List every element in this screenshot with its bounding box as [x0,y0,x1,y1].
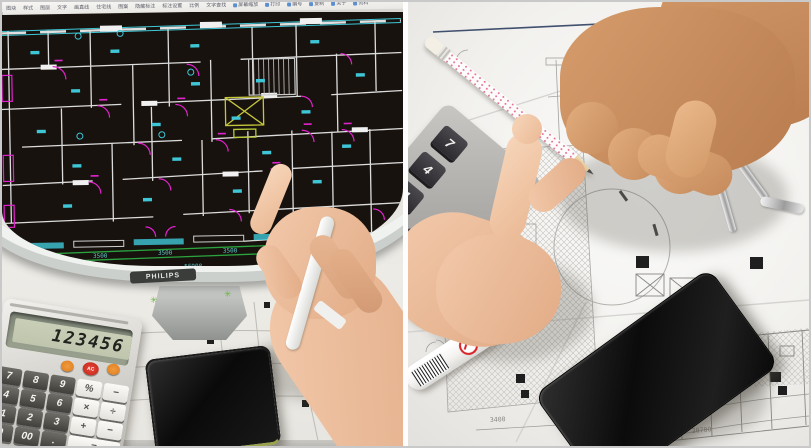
svg-text:3500: 3500 [28,255,43,262]
cad-menu-item: 文字查找 [206,2,226,9]
svg-text:3500: 3500 [93,253,108,260]
cad-staircase [249,58,296,95]
cad-menu-item: 图层 [40,4,50,11]
tool-icon [233,3,237,7]
photo-right-drafting: 2000 2000 500 200 [408,2,809,446]
calc-key: % [75,378,102,399]
cad-menu-item: 资料 [353,2,368,6]
calc-key: 00 [13,426,40,446]
calculator-display: 123456 [12,318,132,360]
cad-menu-item: 隐藏标注 [135,3,155,10]
cad-menu-item: 样式 [23,5,33,12]
smartphone [144,345,281,446]
calc-key: 7 [2,366,23,387]
calc-key: 4 [409,150,447,188]
calc-key: 1 [2,403,17,424]
cad-menu-item: 文字 [57,4,67,11]
cad-menu-item: 画直线 [74,4,89,11]
calc-key: 3 [43,412,70,433]
tool-icon [353,2,357,5]
cad-column-symbols [75,29,195,139]
tool-icon [265,2,269,6]
green-cross-mark: ✳ [150,295,158,306]
calc-key: − [96,420,123,441]
calc-key: 4 [2,385,20,406]
memory-key [106,363,121,376]
cad-menu-item: 图案 [118,3,128,10]
calculator-keypad: 7 8 9 % − 4 5 6 × ÷ 1 2 3 + − 0 00 . = [2,366,129,446]
cad-menu-item: 编号 [287,2,302,8]
monitor-stand [152,286,247,340]
svg-text:3500: 3500 [158,250,173,257]
cad-menu-item: 关于 [331,2,346,7]
calc-key: 8 [22,370,49,391]
calc-key: + [69,416,96,437]
calc-key: 5 [19,389,46,410]
photo-left-cad-monitor: 3500 3500 3500 3500 3500 7000 56908 图块 样… [2,2,403,446]
hand-palm [436,234,561,344]
calc-key: ÷ [99,401,126,422]
cad-menu-item: 比例 [189,2,199,9]
cad-menu-item: 打印 [265,2,280,8]
cad-menu-item: 标注设置 [162,2,182,9]
fingertip [512,114,542,144]
cad-menu-item: 图块 [6,5,16,12]
cad-windows [40,17,369,186]
green-cross-mark: ✳ [224,289,232,300]
svg-text:56908: 56908 [184,263,203,266]
calc-key: 7 [431,124,469,162]
ac-key: AC [82,361,100,376]
tool-icon [331,2,335,5]
calculator: 123456 AC 7 8 9 % − 4 5 6 × ÷ 1 2 3 + − [2,298,143,446]
calc-key: . [40,431,67,446]
cad-menu-item: 住宅线 [96,3,111,10]
calc-key: 1 [408,176,426,214]
tool-icon [309,2,313,6]
calc-key: − [102,383,129,404]
calc-key: 9 [49,374,76,395]
calc-key: × [72,397,99,418]
cad-menu-item: 复制 [309,2,324,7]
tool-icon [287,2,291,6]
cad-door-tags [55,55,353,176]
cad-elevator [225,97,264,138]
calc-key: 6 [46,393,73,414]
cad-menu-item: 屏幕缩放 [233,2,258,8]
calc-key: 0 [2,422,14,443]
two-panel-photo: 3500 3500 3500 3500 3500 7000 56908 图块 样… [0,0,811,448]
memory-key [60,360,75,373]
svg-text:3500: 3500 [223,247,238,254]
svg-text:3400: 3400 [490,415,506,424]
calc-key: 2 [16,408,43,429]
